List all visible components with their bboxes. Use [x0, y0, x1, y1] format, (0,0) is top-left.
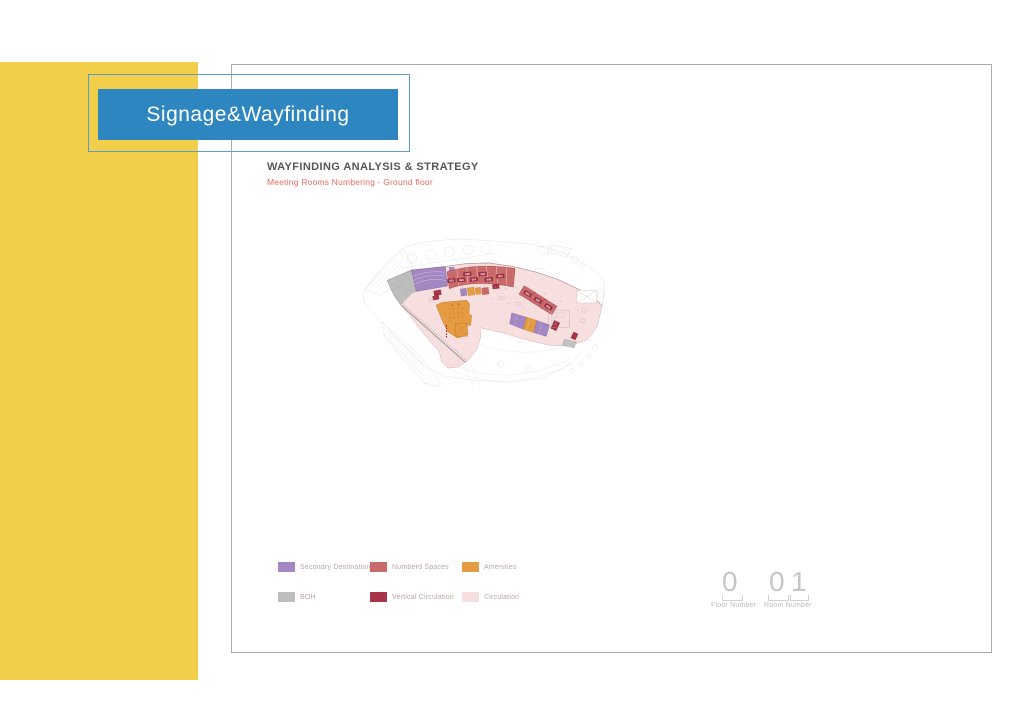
floor-digit-bracket — [722, 595, 743, 601]
legend-item-secondary-destination: Secondry Destination — [278, 562, 371, 572]
legend-label-circulation: Circulation — [484, 594, 519, 601]
room-number-label: Room Number — [764, 602, 812, 609]
legend-swatch-vertical-circulation — [370, 592, 387, 602]
floor-number-value: 0 — [722, 566, 738, 598]
room-digit-bracket-1 — [768, 595, 789, 601]
legend-swatch-circulation — [462, 592, 479, 602]
legend-swatch-boh — [278, 592, 295, 602]
legend-label-secondary-destination: Secondry Destination — [300, 564, 371, 571]
section-heading: WAYFINDING ANALYSIS & STRATEGY — [267, 161, 479, 173]
legend-label-amenities: Amenities — [484, 564, 517, 571]
legend-item-circulation: Circulation — [462, 592, 519, 602]
legend-label-boh: BOH — [300, 594, 316, 601]
floor-plan: 010 009 008 007 006 005 — [345, 235, 810, 520]
legend-swatch-amenities — [462, 562, 479, 572]
legend-item-vertical-circulation: Vertical Circulation — [370, 592, 454, 602]
legend-swatch-numbered-spaces — [370, 562, 387, 572]
legend-label-vertical-circulation: Vertical Circulation — [392, 594, 454, 601]
legend-item-amenities: Amenities — [462, 562, 517, 572]
floor-number-label: Floor Number — [711, 602, 756, 609]
yellow-accent-bar — [0, 62, 198, 680]
legend-item-numbered-spaces: Numberd Spaces — [370, 562, 449, 572]
legend-item-boh: BOH — [278, 592, 316, 602]
slide: Signage&Wayfinding WAYFINDING ANALYSIS &… — [0, 0, 1024, 724]
legend-label-numbered-spaces: Numberd Spaces — [392, 564, 449, 571]
section-subheading: Meeting Rooms Numbering - Ground floor — [267, 177, 433, 187]
title-badge: Signage&Wayfinding — [98, 89, 398, 140]
room-digit-bracket-2 — [790, 595, 809, 601]
page-title: Signage&Wayfinding — [146, 103, 349, 127]
room-number-digit-2: 1 — [791, 566, 807, 598]
room-number-digit-1: 0 — [769, 566, 785, 598]
legend-swatch-secondary-destination — [278, 562, 295, 572]
